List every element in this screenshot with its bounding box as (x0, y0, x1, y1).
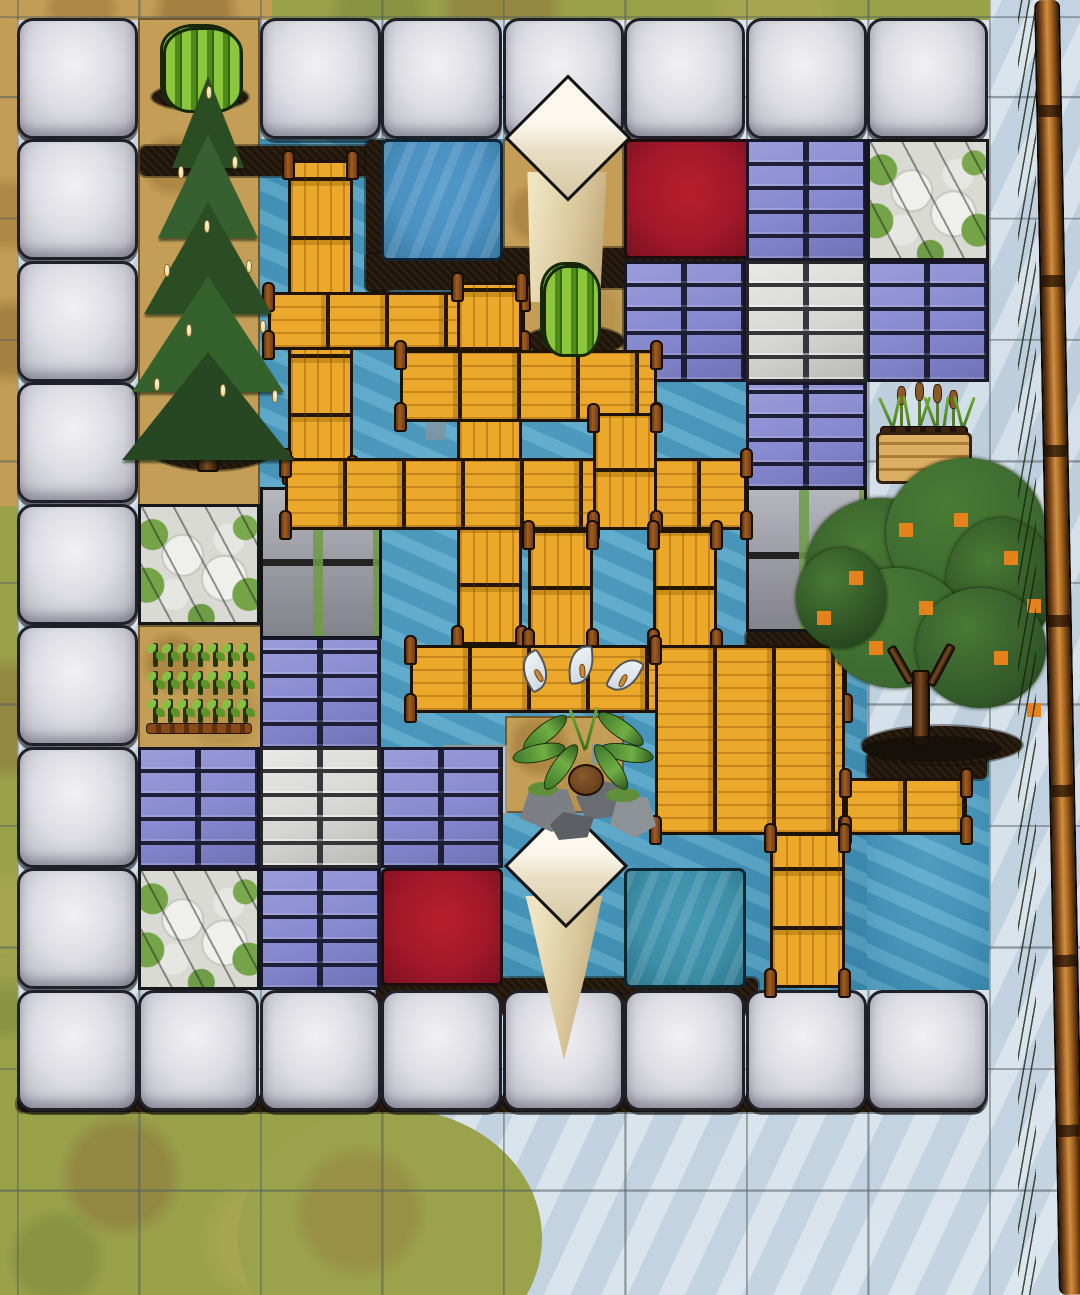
stone-border-block (746, 990, 867, 1111)
candle-icon (154, 378, 160, 391)
seedling-sprig (153, 643, 158, 667)
water-shadow-square (426, 420, 446, 440)
candle-icon (220, 384, 226, 397)
candle-icon (260, 320, 266, 333)
flower-spadix (533, 668, 545, 683)
blue-painted-tile (381, 139, 503, 261)
seedling-sprig (153, 699, 158, 723)
pole[interactable] (1018, 0, 1064, 1295)
purple-brick-tile (260, 868, 381, 990)
lily[interactable] (498, 646, 668, 846)
wooden-bridge-segment (528, 530, 593, 648)
bridge-post-icon (710, 520, 723, 550)
stone-border-block (381, 18, 502, 139)
white-brick-tile (746, 261, 867, 382)
stone-border-block (17, 504, 138, 625)
lily-flower[interactable] (514, 648, 556, 694)
pine-branch-layer (122, 352, 294, 460)
seedling-sprig (243, 699, 248, 723)
bridge-post-icon (279, 510, 292, 540)
candle-icon (272, 390, 278, 403)
flower-spadix (617, 673, 629, 688)
seedling-sprig (243, 671, 248, 695)
candle-icon (232, 156, 238, 169)
wooden-bridge-segment (285, 458, 747, 530)
tree-ground-shadow (862, 736, 1002, 762)
stone-border-block (381, 990, 502, 1111)
candle-icon (186, 324, 192, 337)
purple-brick-tile (746, 139, 867, 261)
seedling-sprig (213, 699, 218, 723)
bridge-post-icon (650, 403, 663, 433)
red-painted-tile (381, 868, 503, 986)
purple-brick-tile (867, 261, 989, 382)
bridge-post-icon (764, 823, 777, 853)
bridge-post-icon (839, 768, 852, 798)
seedling-sprig (228, 671, 233, 695)
candle-icon (206, 86, 212, 99)
stone-border-block (17, 747, 138, 868)
stone-border-block (17, 625, 138, 746)
flower-spadix (579, 664, 586, 678)
lily-bulb (568, 764, 604, 796)
wooden-bridge-segment (593, 413, 657, 530)
purple-brick-tile (260, 637, 381, 749)
seedling-sprig (228, 699, 233, 723)
bridge-post-icon (650, 340, 663, 370)
bridge-post-icon (522, 520, 535, 550)
bridge-post-icon (960, 815, 973, 845)
bridge-post-icon (838, 968, 851, 998)
seedling-sprig (168, 699, 173, 723)
red-painted-tile (624, 139, 752, 259)
stone-border-block (624, 990, 745, 1111)
bridge-post-icon (586, 520, 599, 550)
white-brick-tile (260, 747, 381, 868)
stone-border-block (867, 990, 988, 1111)
cracked-flagstone-tile (867, 139, 989, 261)
pine-tree[interactable] (118, 70, 298, 474)
garden-soil-row (146, 723, 252, 734)
wooden-bridge-segment (653, 530, 717, 648)
stone-border-block (746, 18, 867, 139)
wooden-bridge-segment (400, 350, 657, 422)
seedling-sprig (228, 643, 233, 667)
lily-flower[interactable] (605, 652, 646, 698)
seedling-sprig (198, 643, 203, 667)
cracked-flagstone-tile (138, 868, 260, 990)
stone-border-block (867, 18, 988, 139)
tree-canopy (796, 548, 886, 648)
wooden-bridge-segment (770, 833, 845, 988)
teal-painted-tile (624, 868, 746, 988)
stone-border-block (17, 990, 138, 1111)
seedlings[interactable] (138, 625, 262, 749)
bridge-post-icon (451, 272, 464, 302)
stone-border-block (624, 18, 745, 139)
bridge-post-icon (587, 403, 600, 433)
seedling-sprig (183, 699, 188, 723)
bridge-post-icon (647, 520, 660, 550)
purple-brick-tile (138, 747, 260, 868)
candle-icon (164, 264, 170, 277)
lily-flower[interactable] (567, 645, 596, 685)
cattail-head-icon (933, 384, 942, 403)
seedling-sprig (213, 643, 218, 667)
seedling-sprig (198, 699, 203, 723)
stone-border-block (260, 990, 381, 1111)
bridge-post-icon (740, 448, 753, 478)
stone-border-block (17, 868, 138, 989)
seedling-sprig (168, 643, 173, 667)
cactus-body (543, 265, 601, 357)
wooden-bridge-segment (845, 778, 967, 835)
seedling-sprig (153, 671, 158, 695)
grass-hatching (1018, 0, 1036, 1295)
seedling-sprig (243, 643, 248, 667)
seedling-sprig (183, 671, 188, 695)
candle-icon (246, 260, 252, 273)
battle-map-canvas[interactable] (0, 0, 1080, 1295)
cracked-flagstone-tile (138, 504, 260, 625)
seedling-sprig (198, 671, 203, 695)
seedling-sprig (213, 671, 218, 695)
bridge-post-icon (764, 968, 777, 998)
bridge-post-icon (740, 510, 753, 540)
seedling-sprig (168, 671, 173, 695)
bridge-post-icon (404, 635, 417, 665)
bridge-post-icon (960, 768, 973, 798)
stone-border-block (138, 990, 259, 1111)
seedling-sprig (183, 643, 188, 667)
bridge-post-icon (394, 340, 407, 370)
candle-icon (178, 166, 184, 179)
bridge-post-icon (346, 150, 359, 180)
obelisk-top (504, 74, 631, 201)
purple-brick-tile (381, 747, 503, 868)
bridge-post-icon (404, 693, 417, 723)
bridge-post-icon (838, 823, 851, 853)
cactus[interactable] (540, 262, 598, 354)
bridge-post-icon (394, 402, 407, 432)
candle-icon (204, 220, 210, 233)
